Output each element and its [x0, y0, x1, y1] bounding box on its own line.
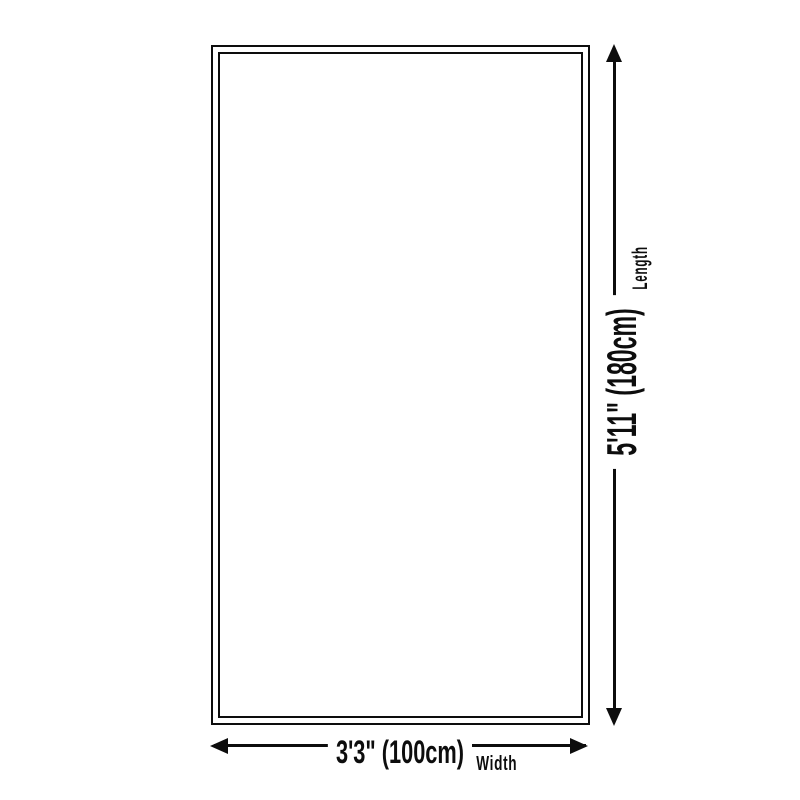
width-label: 3'3" (100cm) Width: [328, 733, 472, 771]
left-arrowhead-icon: [210, 738, 228, 754]
width-value-label: 3'3" (100cm): [336, 736, 464, 768]
right-arrowhead-icon: [570, 738, 588, 754]
product-outline: [211, 45, 590, 725]
down-arrowhead-icon: [606, 708, 622, 726]
size-diagram: 5'11" (180cm) Length 3'3" (100cm) Width: [0, 0, 800, 800]
length-value-label: 5'11" (180cm): [601, 308, 643, 455]
length-label: 5'11" (180cm) Length: [597, 295, 647, 469]
up-arrowhead-icon: [606, 44, 622, 62]
width-axis-label: Width: [476, 754, 517, 774]
product-inner-border: [218, 52, 583, 718]
length-axis-label: Length: [630, 246, 651, 289]
